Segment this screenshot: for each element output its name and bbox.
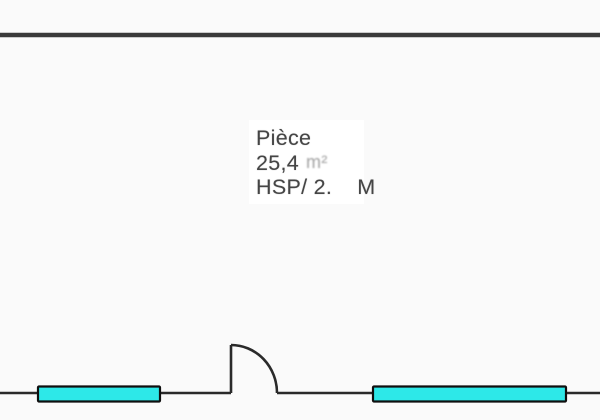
window-right — [373, 387, 566, 402]
room-label: Pièce 25,4m² HSP/ 2.M — [256, 126, 375, 199]
room-name: Pièce — [256, 126, 375, 150]
room-height-label: HSP/ 2. — [256, 175, 332, 199]
floorplan-canvas: Pièce 25,4m² HSP/ 2.M — [0, 0, 600, 420]
room-area-value: 25,4 — [256, 151, 299, 175]
room-height-unit: M — [357, 175, 375, 199]
floorplan-drawing — [0, 0, 600, 420]
room-area: 25,4m² — [256, 150, 375, 175]
door-swing-arc — [231, 345, 277, 393]
window-left — [38, 387, 160, 402]
room-area-unit: m² — [306, 152, 328, 172]
room-height: HSP/ 2.M — [256, 175, 375, 199]
